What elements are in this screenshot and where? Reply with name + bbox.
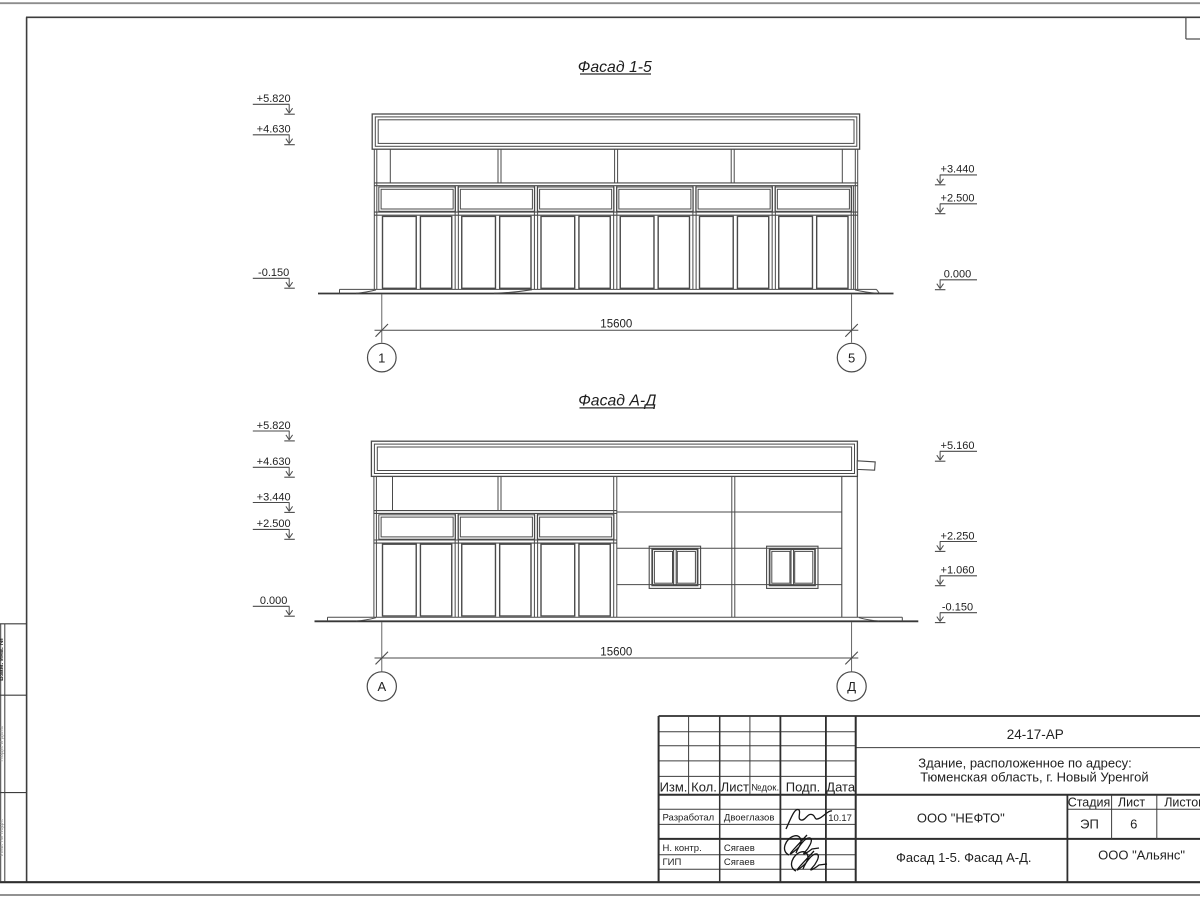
svg-text:Взам. инв. №: Взам. инв. № [0,638,5,681]
svg-text:Подп.: Подп. [786,779,821,794]
svg-text:1: 1 [378,350,385,365]
svg-text:Двоеглазов: Двоеглазов [724,812,775,823]
svg-text:15600: 15600 [600,646,632,658]
svg-text:+3.440: +3.440 [257,491,291,503]
svg-text:Фасад 1-5. Фасад А-Д.: Фасад 1-5. Фасад А-Д. [896,850,1032,865]
svg-text:ООО "НЕФТО": ООО "НЕФТО" [917,811,1005,826]
svg-text:ЭП: ЭП [1080,817,1099,832]
svg-text:15600: 15600 [600,319,632,331]
svg-text:+5.160: +5.160 [941,440,975,452]
svg-text:Лист: Лист [721,779,749,794]
svg-text:+2.250: +2.250 [941,530,975,542]
svg-text:Изм.: Изм. [660,779,688,794]
svg-text:Кол.: Кол. [691,779,717,794]
svg-text:Тюменская область, г. Новый Ур: Тюменская область, г. Новый Уренгой [920,770,1148,785]
svg-text:+4.630: +4.630 [257,456,291,468]
svg-text:Разработал: Разработал [663,812,715,823]
svg-text:+5.820: +5.820 [257,93,291,105]
svg-text:24-17-АР: 24-17-АР [1007,727,1064,742]
svg-text:0.000: 0.000 [260,595,288,607]
svg-text:+2.500: +2.500 [257,518,291,530]
svg-text:0.000: 0.000 [944,269,972,281]
svg-text:+5.820: +5.820 [257,420,291,432]
svg-text:-0.150: -0.150 [942,602,973,614]
svg-text:ООО "Альянс": ООО "Альянс" [1098,848,1185,863]
svg-text:-0.150: -0.150 [258,267,289,279]
svg-text:ГИП: ГИП [663,857,682,868]
svg-text:6: 6 [1130,817,1137,832]
svg-text:Здание, расположенное по адрес: Здание, расположенное по адресу: [918,756,1131,771]
svg-text:Инв. № подл.: Инв. № подл. [0,818,5,856]
svg-text:Сягаев: Сягаев [724,843,755,854]
svg-text:Листов: Листов [1164,796,1200,810]
svg-text:+3.440: +3.440 [941,164,975,176]
svg-text:А: А [377,679,386,694]
svg-text:Стадия: Стадия [1068,796,1111,810]
svg-text:Н. контр.: Н. контр. [663,843,702,854]
svg-text:Дата: Дата [826,779,856,794]
svg-text:10.17: 10.17 [828,813,852,824]
svg-text:+4.630: +4.630 [257,124,291,136]
svg-text:Фасад 1-5: Фасад 1-5 [578,59,652,76]
svg-text:Подп. и дата: Подп. и дата [0,726,5,762]
svg-text:+2.500: +2.500 [941,193,975,205]
svg-text:Лист: Лист [1118,796,1145,810]
svg-text:Фасад А-Д: Фасад А-Д [578,393,656,410]
svg-text:Сягаев: Сягаев [724,857,755,868]
svg-text:№док.: №док. [751,783,779,794]
svg-text:+1.060: +1.060 [941,565,975,577]
svg-text:5: 5 [848,350,855,365]
svg-text:Д: Д [847,679,856,694]
